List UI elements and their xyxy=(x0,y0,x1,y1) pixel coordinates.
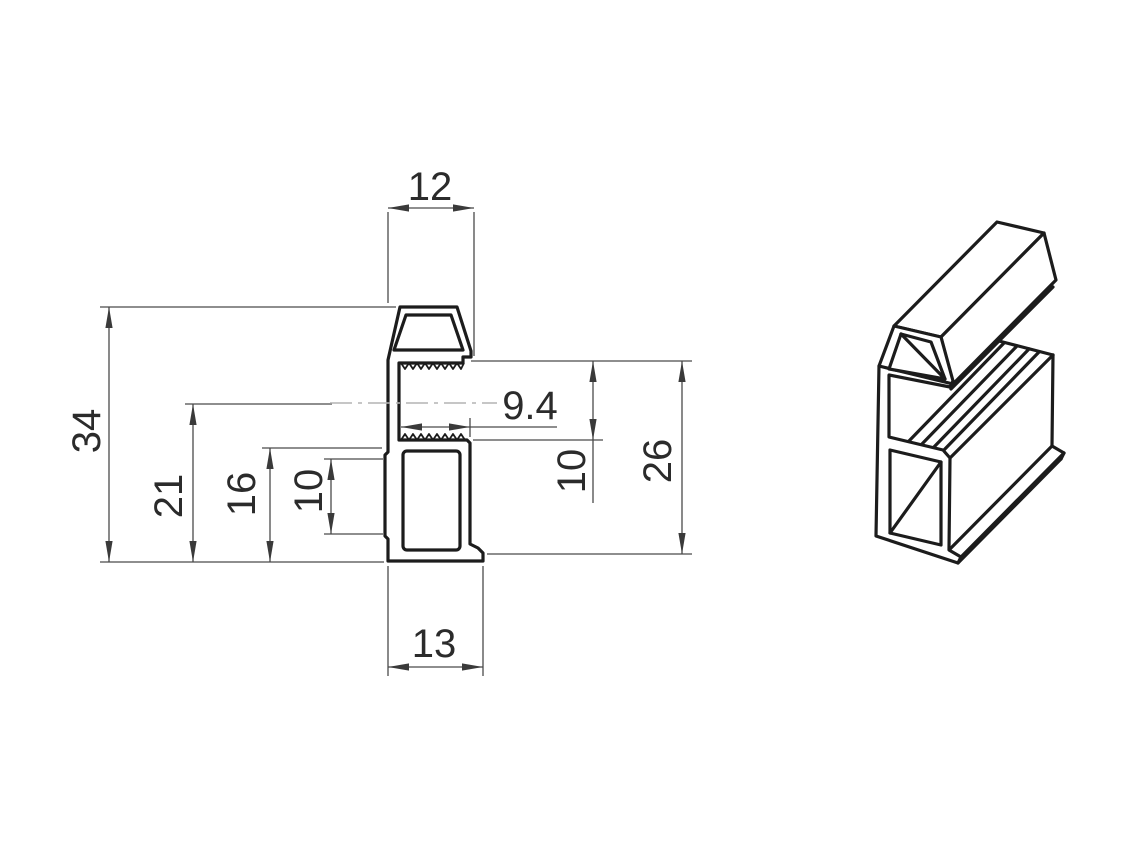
dim-base-width: 13 xyxy=(388,566,483,676)
dim-recess-height-label: 10 xyxy=(287,469,331,514)
iso-body-bottom-right-edge xyxy=(949,446,1052,550)
dim-overall-height: 34 xyxy=(65,307,396,562)
dim-slot-depth-label: 9.4 xyxy=(502,384,558,428)
dim-slot-height: 10 xyxy=(473,361,603,503)
drawing-canvas: 12 34 21 16 10 xyxy=(0,0,1136,850)
dim-recess-height: 10 xyxy=(287,459,383,534)
technical-drawing: 12 34 21 16 10 xyxy=(0,0,1136,850)
dim-centerline-height: 21 xyxy=(147,404,193,562)
isometric-view xyxy=(876,222,1064,563)
iso-body-back-right-edge xyxy=(1052,355,1053,446)
dim-slot-depth: 9.4 xyxy=(401,384,558,437)
grip-teeth-bottom xyxy=(401,434,465,440)
dim-centerline-height-label: 21 xyxy=(147,474,191,519)
dim-overall-height-label: 34 xyxy=(65,409,109,454)
body-cavity-rect xyxy=(403,451,460,550)
head-cavity-path xyxy=(394,315,463,350)
cross-section-view: 12 34 21 16 10 xyxy=(65,165,692,676)
dim-head-width-label: 12 xyxy=(408,165,453,209)
iso-foot-bottom-edge xyxy=(958,459,1061,563)
dim-slot-height-label: 10 xyxy=(550,449,594,494)
dim-body-height-label: 16 xyxy=(220,472,264,517)
dim-side-height-label: 26 xyxy=(636,439,680,484)
iso-foot-top-edge xyxy=(961,453,1064,557)
dim-base-width-label: 13 xyxy=(412,622,457,666)
